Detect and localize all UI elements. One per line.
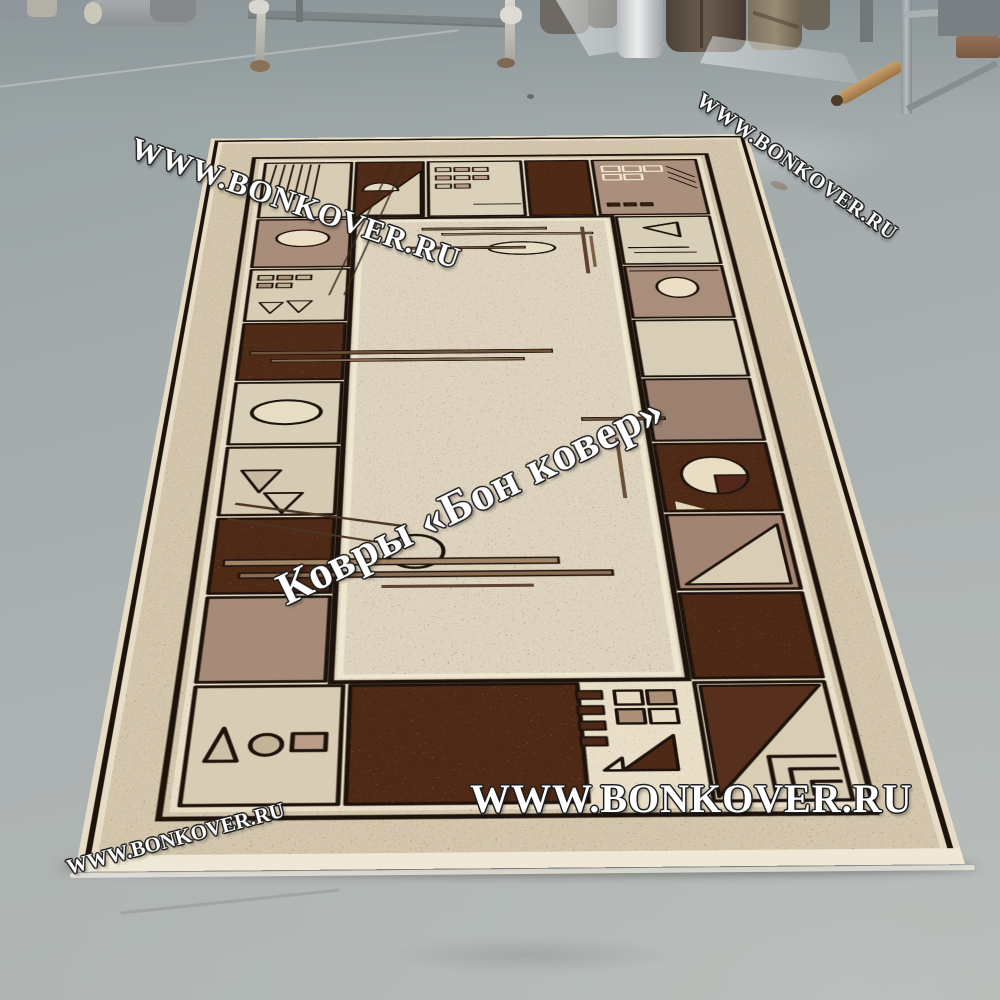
stand-foot [250, 60, 270, 72]
floor-stain [380, 935, 680, 975]
roll-end-cap [84, 2, 102, 24]
grey-cylinder [27, 0, 57, 17]
tube-end-hole [831, 95, 843, 106]
metal-stand-leg [296, 0, 303, 22]
machinery-silhouette [938, 0, 1000, 36]
carpet-roll [802, 0, 830, 30]
floor-scratch [120, 889, 339, 915]
white-rag [249, 0, 269, 14]
white-rag [500, 6, 522, 24]
rusty-box [956, 36, 1000, 58]
stand-foot [497, 58, 515, 68]
roll-seam [700, 0, 703, 48]
film-roll [617, 0, 663, 58]
grey-roll [150, 0, 196, 22]
grey-cylinder [0, 0, 26, 20]
rug-product-photo: WWW.BONKOVER.RU WWW.BONKOVER.RU Ковры «Б… [0, 0, 1000, 1000]
watermark-bottom: WWW.BONKOVER.RU [470, 775, 912, 822]
floor-mark [527, 94, 534, 99]
grey-pole [860, 0, 873, 42]
